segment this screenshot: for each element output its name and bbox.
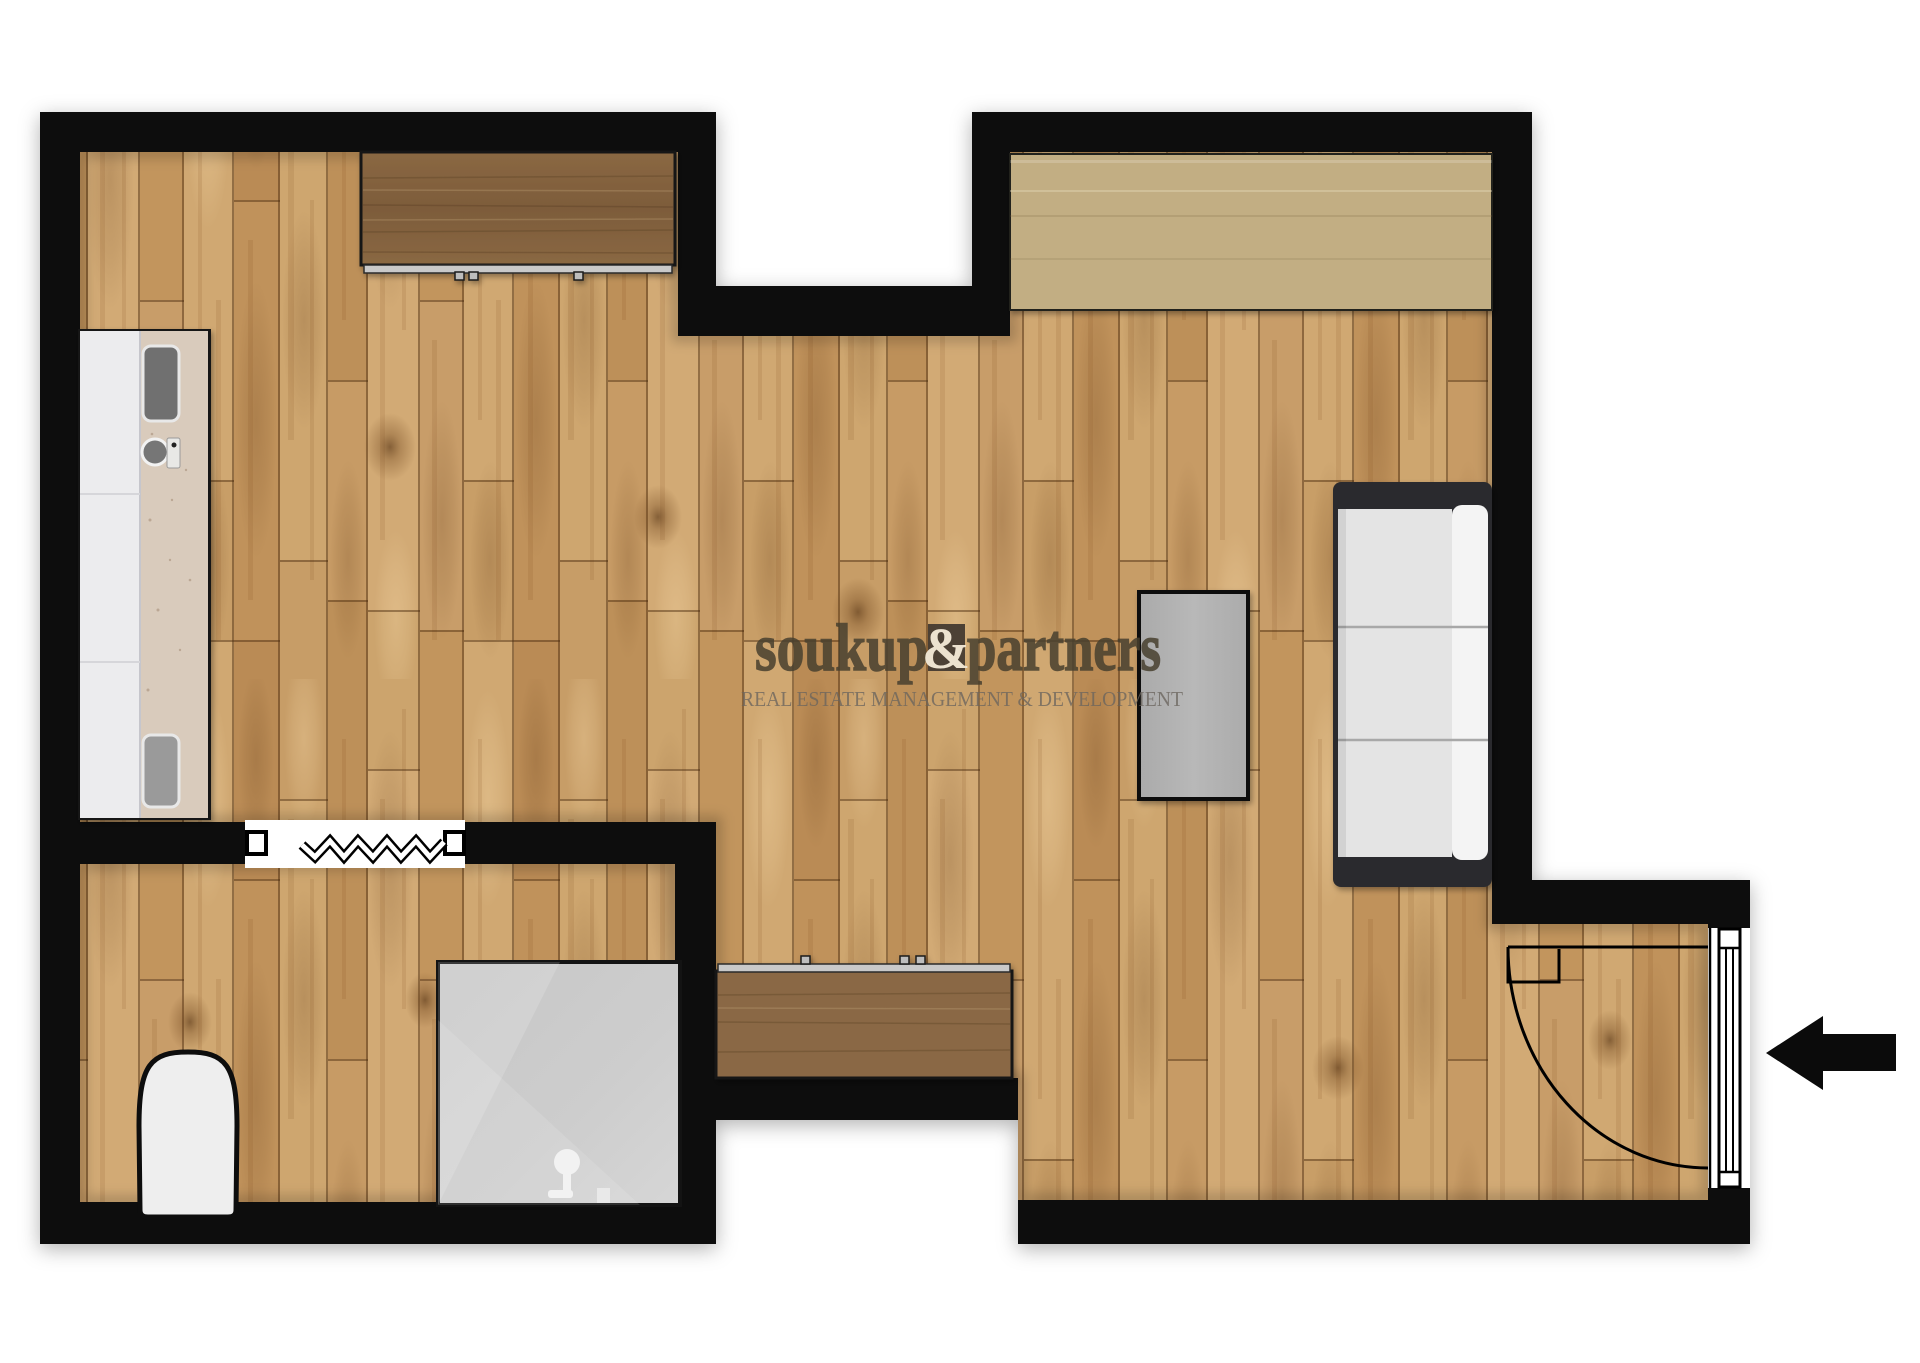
svg-text:partners: partners <box>967 611 1161 685</box>
svg-text:soukup: soukup <box>755 611 928 685</box>
svg-text:REAL ESTATE MANAGEMENT & DEVEL: REAL ESTATE MANAGEMENT & DEVELOPMENT <box>741 687 1183 711</box>
svg-text:&: & <box>922 616 970 681</box>
